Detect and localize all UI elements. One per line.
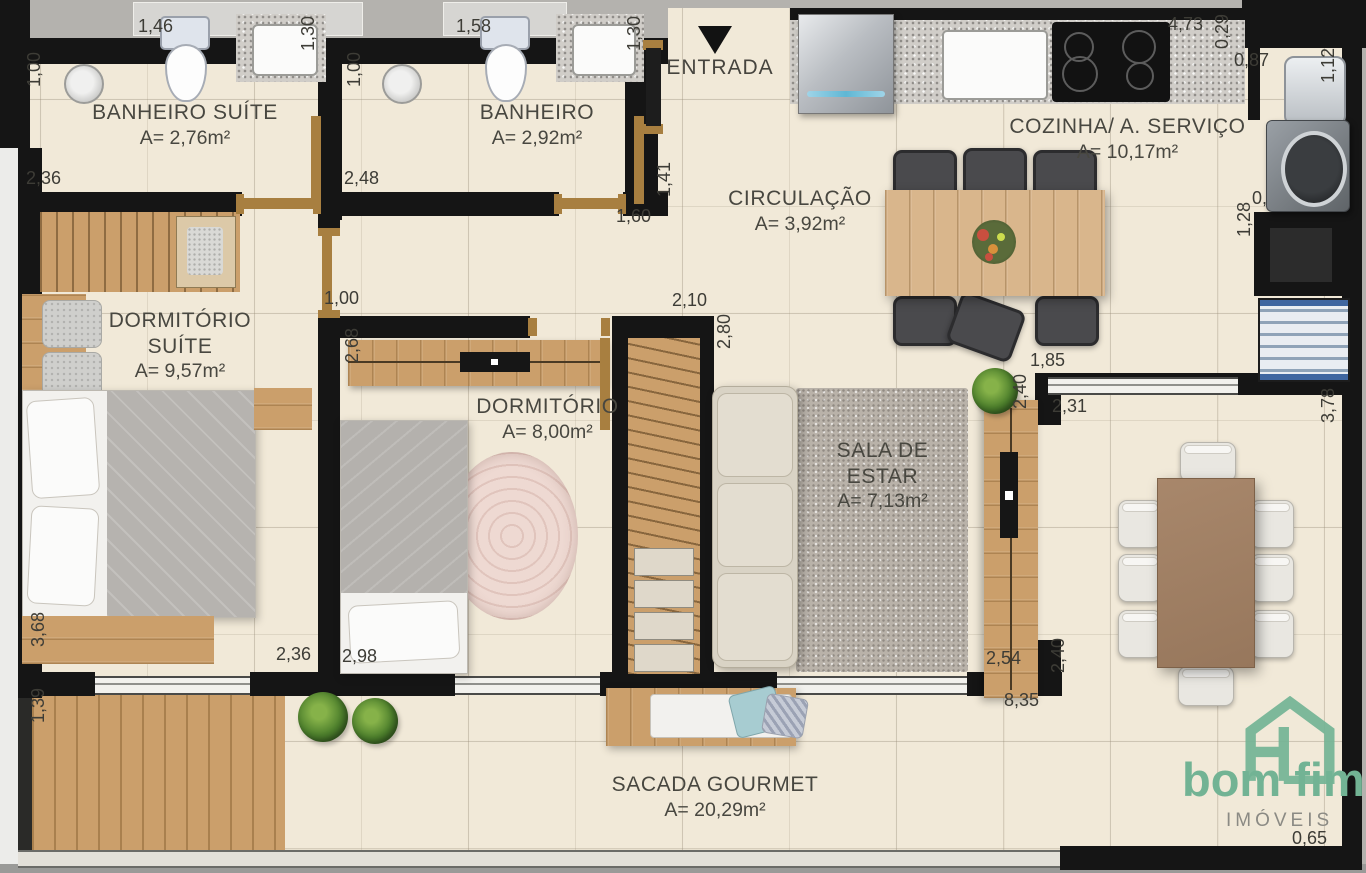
dim: 2,36 [276, 644, 311, 665]
dim: 1,39 [28, 688, 49, 723]
wall-suite-vertical [318, 316, 340, 674]
entrance-label: ENTRADA [655, 56, 785, 80]
burner [1122, 30, 1156, 64]
door-leaf-open [311, 116, 321, 204]
dim: 1,28 [1234, 202, 1255, 237]
towels [187, 227, 223, 275]
dim: 1,46 [138, 16, 173, 37]
round-basin-icon [64, 64, 104, 104]
sofa-cushion [717, 393, 793, 477]
dim: 1,12 [1318, 48, 1339, 83]
chair-white [1178, 666, 1234, 706]
door-jamb [528, 318, 537, 336]
outside-left [0, 148, 18, 873]
room-name: DORMITÓRIO [455, 394, 640, 420]
dim: 2,48 [344, 168, 379, 189]
chair-white [1250, 610, 1294, 658]
pillow [26, 505, 99, 606]
room-label-sala: SALA DE ESTAR A= 7,13m² [800, 438, 965, 514]
room-name: BANHEIRO SUÍTE [70, 100, 300, 126]
room-label-banheiro-suite: BANHEIRO SUÍTE A= 2,76m² [70, 100, 300, 150]
room-label-cozinha: COZINHA/ A. SERVIÇO A= 10,17m² [1000, 114, 1255, 164]
room-label-dormitorio: DORMITÓRIO A= 8,00m² [455, 394, 640, 444]
dim: 1,00 [344, 52, 365, 87]
burner [1062, 56, 1098, 92]
room-area: A= 2,76m² [70, 127, 300, 151]
room-area: A= 20,29m² [590, 799, 840, 823]
plant-icon [298, 692, 348, 742]
ac-condenser-icon [1258, 298, 1350, 382]
plant-icon [352, 698, 398, 744]
dim: 1,00 [324, 288, 359, 309]
deck-floor [32, 684, 285, 850]
room-label-sacada: SACADA GOURMET A= 20,29m² [590, 772, 840, 822]
dim: 4,73 [1168, 14, 1203, 35]
duvet [341, 421, 467, 593]
nightstand [254, 388, 312, 430]
dim: 0,87 [1234, 50, 1269, 71]
wall-bottom-right [1060, 846, 1342, 870]
room-area: A= 3,92m² [710, 213, 890, 237]
room-label-banheiro: BANHEIRO A= 2,92m² [428, 100, 646, 150]
sofa-cushion [717, 483, 793, 567]
logo-brand: bom fim [1182, 752, 1366, 807]
room-name: DORMITÓRIO SUÍTE [100, 308, 260, 359]
duvet [107, 391, 255, 617]
tv-icon [460, 352, 530, 372]
dim: 2,36 [26, 168, 61, 189]
dim: 1,58 [456, 16, 491, 37]
room-area: A= 2,92m² [428, 127, 646, 151]
outside-entry-strip [668, 0, 790, 8]
chair-white [1250, 500, 1294, 548]
cooktop-icon [1052, 22, 1170, 102]
chair-white [1180, 442, 1236, 482]
ac-edge [1260, 374, 1348, 380]
closet-drawer [634, 644, 694, 672]
room-name: COZINHA/ A. SERVIÇO [1000, 114, 1255, 140]
window-suite [95, 676, 250, 695]
window-dormitorio [455, 676, 600, 695]
kitchen-sink-icon [942, 30, 1048, 100]
chair-white [1118, 554, 1162, 602]
dim: 2,68 [342, 328, 363, 363]
tv-logo-dot [1005, 491, 1013, 500]
burner [1126, 62, 1154, 90]
chair-dark [1035, 296, 1099, 346]
sofa [712, 386, 798, 668]
balcony-railing [18, 850, 1060, 868]
pillow-patterned [761, 693, 809, 740]
fruit [977, 229, 989, 241]
room-name: BANHEIRO [428, 100, 646, 126]
washing-machine-icon [1266, 120, 1350, 212]
door-jamb [601, 318, 610, 336]
tv-logo-dot [491, 359, 498, 365]
single-bed [340, 420, 468, 674]
window-dining [1048, 377, 1238, 395]
pillow [26, 397, 101, 500]
chair-white [1118, 610, 1162, 658]
dim: 1,00 [24, 52, 45, 87]
dim: 2,40 [1010, 374, 1031, 409]
wall-bottom-2 [250, 672, 455, 696]
wardrobe-shelf [176, 216, 236, 288]
entrance-arrow-icon [698, 26, 732, 54]
room-label-dormitorio-suite: DORMITÓRIO SUÍTE A= 9,57m² [100, 308, 260, 384]
fridge-light [807, 91, 886, 97]
tv-icon [1000, 452, 1018, 538]
floor-plan: ENTRADA BANHEIRO SUÍTE A= 2,76m² BANHEIR… [0, 0, 1366, 873]
dim: 8,35 [1004, 690, 1039, 711]
room-name: SALA DE ESTAR [800, 438, 965, 489]
wall-banheiro-bottom [342, 192, 559, 216]
room-area: A= 8,00m² [455, 421, 640, 445]
dim: 2,31 [1052, 396, 1087, 417]
dim: 1,30 [298, 16, 319, 51]
washer-door [1281, 131, 1347, 207]
room-area: A= 9,57m² [100, 360, 260, 384]
shaft-duct [1270, 228, 1332, 282]
room-name: SACADA GOURMET [590, 772, 840, 798]
dim: 1,41 [654, 162, 675, 197]
dim: 3,68 [28, 612, 49, 647]
sala-rug [796, 388, 968, 672]
chair-white [1118, 500, 1162, 548]
room-area: A= 7,13m² [800, 490, 965, 514]
pouf [42, 300, 102, 348]
ac-edge [1260, 300, 1348, 306]
double-bed [22, 390, 256, 618]
chair-white [1250, 554, 1294, 602]
room-name: CIRCULAÇÃO [710, 186, 890, 212]
door-leaf-banheiro-suite [243, 198, 315, 209]
dim: 3,78 [1318, 388, 1339, 423]
room-label-circulacao: CIRCULAÇÃO A= 3,92m² [710, 186, 890, 236]
window-sala [777, 676, 967, 695]
wall-closet-left [612, 316, 628, 674]
sofa-cushion [717, 573, 793, 661]
closet-drawer [634, 612, 694, 640]
dining-table [1157, 478, 1255, 668]
dim: 1,60 [616, 206, 651, 227]
dim: 1,30 [624, 16, 645, 51]
round-basin-icon [382, 64, 422, 104]
logo-subtitle: IMÓVEIS [1226, 810, 1333, 832]
bed-bench [22, 616, 214, 664]
dim: 1,85 [1030, 350, 1065, 371]
closet-drawer [634, 580, 694, 608]
dim: 0,29 [1212, 14, 1233, 49]
fruit-bowl-icon [972, 220, 1016, 264]
balcony-bench [606, 688, 796, 746]
dim: 2,54 [986, 648, 1021, 669]
dim: 2,10 [672, 290, 707, 311]
dim: 2,80 [714, 314, 735, 349]
door-leaf-banheiro [560, 198, 620, 209]
room-area: A= 10,17m² [1000, 141, 1255, 165]
dim: 2,98 [342, 646, 377, 667]
closet-drawer [634, 548, 694, 576]
dim: 2,40 [1048, 638, 1069, 673]
fridge-icon [798, 14, 894, 114]
